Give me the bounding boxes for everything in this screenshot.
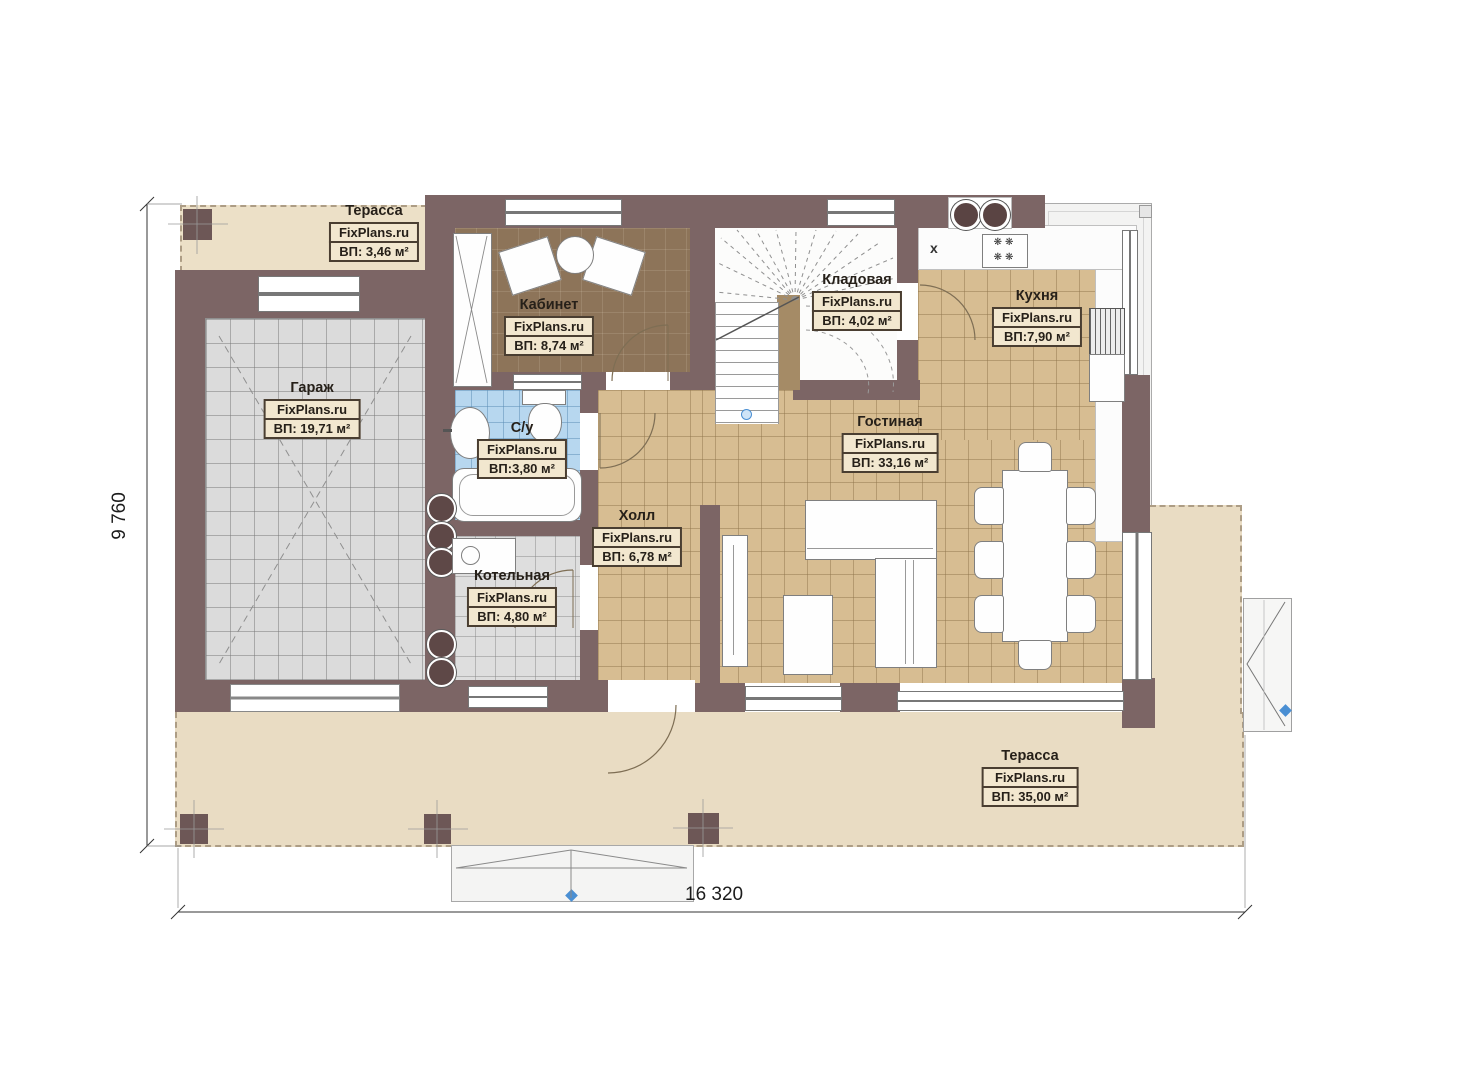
window-office	[505, 199, 622, 226]
kitchen-counter-unit	[1089, 354, 1125, 402]
room-label-office: Кабинет FixPlans.ru ВП: 8,74 м²	[504, 297, 594, 356]
wall-corner-post	[1122, 678, 1155, 728]
window-stairs	[827, 199, 895, 226]
post-terrace-top-left	[183, 209, 212, 240]
garage-floor	[205, 318, 427, 682]
window-boiler-bottom	[468, 686, 548, 708]
sofa-line-1	[905, 560, 906, 664]
room-name: Холл	[592, 508, 682, 524]
office-round-table	[556, 236, 594, 274]
room-area: ВП: 33,16 м²	[842, 452, 939, 473]
watermark: FixPlans.ru	[812, 291, 902, 312]
room-area: ВП: 8,74 м²	[504, 335, 594, 356]
wall-bath-boiler	[455, 520, 598, 536]
room-name: Котельная	[467, 568, 557, 584]
door-gap-boiler	[580, 565, 598, 630]
dining-chair-l3	[974, 595, 1004, 633]
dining-chair-l2	[974, 541, 1004, 579]
coffee-table	[783, 595, 833, 675]
room-label-boiler: Котельная FixPlans.ru ВП: 4,80 м²	[467, 568, 557, 627]
watermark: FixPlans.ru	[504, 316, 594, 337]
room-area: ВП: 6,78 м²	[592, 546, 682, 567]
room-name: Кладовая	[812, 272, 902, 288]
kitchen-stove: ❋❋❋❋	[982, 234, 1028, 268]
room-area: ВП: 3,46 м²	[329, 241, 419, 262]
dining-chair-l1	[974, 487, 1004, 525]
room-area: ВП:7,90 м²	[992, 326, 1082, 347]
window-living-right	[1122, 532, 1152, 680]
post-bottom-left	[180, 814, 208, 844]
hall-living-opening-floor	[702, 390, 716, 505]
dimension-height: 9 760	[109, 492, 131, 540]
room-area: ВП: 4,80 м²	[467, 606, 557, 627]
post-bottom-mid1	[424, 814, 451, 844]
room-name: Гараж	[264, 380, 361, 396]
veranda-corner-marker	[1139, 205, 1152, 218]
wall-office-stairs	[690, 228, 715, 390]
wall-hall-living	[700, 505, 720, 712]
kitchen-sink-bowl-2	[980, 200, 1010, 230]
watermark: FixPlans.ru	[992, 307, 1082, 328]
refrigerator	[1089, 308, 1125, 356]
boiler-tank-5	[427, 658, 456, 687]
post-bottom-mid2	[688, 813, 719, 844]
dining-table	[1002, 470, 1068, 642]
boiler-tank-1	[427, 494, 456, 523]
watermark: FixPlans.ru	[842, 433, 939, 454]
window-garage	[258, 276, 360, 312]
room-label-hall: Холл FixPlans.ru ВП: 6,78 м²	[592, 508, 682, 567]
wall-left	[175, 270, 205, 712]
room-label-living: Гостиная FixPlans.ru ВП: 33,16 м²	[842, 414, 939, 473]
bathtub-inner	[459, 474, 575, 516]
dining-chair-r2	[1066, 541, 1096, 579]
kitchen-hood-mark: x	[930, 240, 938, 256]
office-wardrobe	[453, 233, 492, 387]
room-area: ВП: 35,00 м²	[982, 786, 1079, 807]
door-gap-hall-terrace	[608, 680, 695, 712]
room-name: Терасса	[329, 203, 419, 219]
boiler-tank-4	[427, 630, 456, 659]
washbasin-tap	[443, 429, 452, 432]
floor-plan-canvas: ❋❋❋❋ x	[0, 0, 1474, 1080]
stair-partition	[777, 295, 800, 390]
window-living-bottom-2	[897, 691, 1124, 711]
room-area: ВП: 4,02 м²	[812, 310, 902, 331]
dining-chair-bottom	[1018, 640, 1052, 670]
room-name: Гостиная	[842, 414, 939, 430]
kitchen-sink-bowl-1	[951, 200, 981, 230]
watermark: FixPlans.ru	[592, 527, 682, 548]
door-gap-office	[606, 372, 670, 390]
room-label-kitchen: Кухня FixPlans.ru ВП:7,90 м²	[992, 288, 1082, 347]
room-label-terrace-top: Терасса FixPlans.ru ВП: 3,46 м²	[329, 203, 419, 262]
room-name: Кухня	[992, 288, 1082, 304]
room-label-terrace-main: Терасса FixPlans.ru ВП: 35,00 м²	[982, 748, 1079, 807]
tv-stand	[722, 535, 748, 667]
window-living-bottom-1	[745, 686, 842, 711]
room-label-bathroom: С/у FixPlans.ru ВП:3,80 м²	[477, 420, 567, 479]
watermark: FixPlans.ru	[264, 399, 361, 420]
watermark: FixPlans.ru	[329, 222, 419, 243]
room-name: Кабинет	[504, 297, 594, 313]
watermark: FixPlans.ru	[982, 767, 1079, 788]
sofa-vertical	[875, 558, 937, 668]
room-area: ВП:3,80 м²	[477, 458, 567, 479]
sofa-horizontal	[805, 500, 937, 560]
dining-chair-r3	[1066, 595, 1096, 633]
dining-chair-r1	[1066, 487, 1096, 525]
sofa-line-2	[913, 560, 914, 664]
sofa-line-3	[807, 548, 933, 549]
watermark: FixPlans.ru	[477, 439, 567, 460]
dining-chair-top	[1018, 442, 1052, 472]
room-name: Терасса	[982, 748, 1079, 764]
dimension-width: 16 320	[685, 884, 743, 906]
room-label-garage: Гараж FixPlans.ru ВП: 19,71 м²	[264, 380, 361, 439]
terrace-right-floor	[1150, 505, 1242, 714]
garage-door-opening	[230, 684, 400, 712]
watermark: FixPlans.ru	[467, 587, 557, 608]
door-gap-bathroom	[580, 413, 598, 470]
room-area: ВП: 19,71 м²	[264, 418, 361, 439]
window-office-bottom	[513, 374, 582, 390]
room-name: С/у	[477, 420, 567, 436]
wall-right	[1122, 375, 1150, 532]
wall-bottom-pier2	[840, 683, 900, 712]
wall-bottom-pier1	[695, 683, 745, 712]
tv-stand-line	[733, 545, 734, 655]
boiler-sink	[461, 546, 480, 565]
room-label-storage: Кладовая FixPlans.ru ВП: 4,02 м²	[812, 272, 902, 331]
staircase-steps	[715, 302, 779, 424]
stair-base-marker	[741, 409, 752, 420]
